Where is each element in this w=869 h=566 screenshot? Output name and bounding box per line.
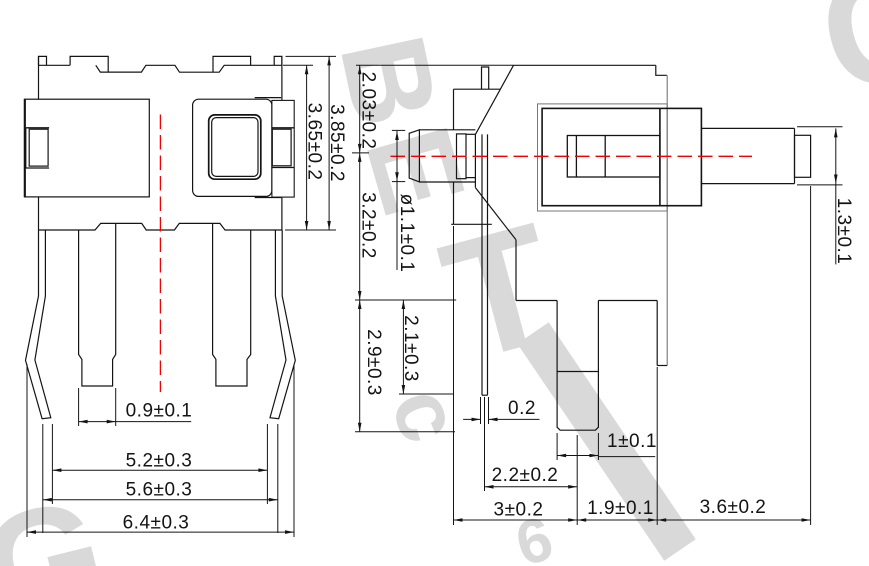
svg-text:1.3±0.1: 1.3±0.1: [833, 198, 854, 265]
svg-text:3.2±0.2: 3.2±0.2: [358, 192, 379, 259]
svg-text:2.1±0.3: 2.1±0.3: [400, 315, 421, 382]
svg-text:1±0.1: 1±0.1: [607, 431, 657, 452]
svg-text:3.6±0.2: 3.6±0.2: [700, 497, 767, 518]
svg-text:3±0.2: 3±0.2: [494, 499, 544, 520]
svg-text:3.65±0.2: 3.65±0.2: [303, 103, 324, 181]
svg-text:6.4±0.3: 6.4±0.3: [123, 512, 190, 533]
svg-text:2.9±0.3: 2.9±0.3: [363, 329, 384, 396]
svg-text:3.85±0.2: 3.85±0.2: [326, 104, 347, 182]
svg-text:0.9±0.1: 0.9±0.1: [126, 400, 193, 421]
svg-text:ø1.1±0.1: ø1.1±0.1: [396, 194, 417, 273]
svg-text:2.2±0.2: 2.2±0.2: [492, 465, 559, 486]
svg-text:1.9±0.1: 1.9±0.1: [587, 498, 654, 519]
svg-text:2.03±0.2: 2.03±0.2: [358, 72, 379, 150]
svg-text:5.2±0.3: 5.2±0.3: [126, 450, 193, 471]
svg-text:5.6±0.3: 5.6±0.3: [126, 479, 193, 500]
svg-text:0.2: 0.2: [508, 398, 536, 419]
